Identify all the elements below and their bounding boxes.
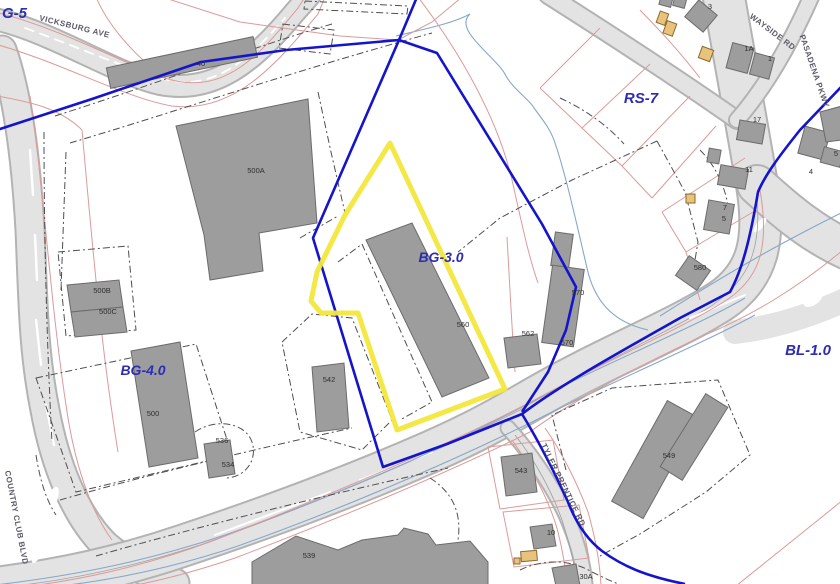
building-label-500: 500 <box>147 409 160 418</box>
building-label-3: 3 <box>708 2 712 11</box>
building-label-560: 560 <box>457 320 470 329</box>
building-small-top <box>673 0 687 8</box>
parcel-line <box>736 500 840 584</box>
building-30A <box>552 564 580 584</box>
building-label-5: 5 <box>722 214 726 223</box>
building-500A <box>176 99 317 280</box>
zone-label-bl1: BL-1.0 <box>785 342 832 359</box>
building-label-7: 7 <box>723 203 727 212</box>
zone-label-rs7: RS-7 <box>624 90 659 107</box>
building-label-539: 539 <box>303 551 316 560</box>
zone-label-bg4: BG-4.0 <box>120 362 165 378</box>
zone-label-g5: G-5 <box>2 5 28 22</box>
building-542 <box>312 363 349 432</box>
building-534 <box>204 440 235 478</box>
building-17 <box>736 120 765 144</box>
building-label-570-lower: 570 <box>561 338 574 347</box>
building-label-570-upper: 570 <box>572 288 585 297</box>
building-7-5 <box>704 200 735 234</box>
building-label-1: 1 <box>768 54 772 63</box>
building-label-1A: 1A <box>744 44 753 53</box>
building-11b <box>707 148 721 164</box>
building-11 <box>717 165 748 190</box>
building-label-549: 549 <box>663 451 676 460</box>
zoning-map-canvas[interactable]: G-5 RS-7 BG-3.0 BG-4.0 BL-1.0 VICKSBURG … <box>0 0 840 584</box>
building-539 <box>252 528 488 584</box>
building-label-580: 580 <box>694 263 707 272</box>
building-small-top <box>659 0 673 7</box>
building-500 <box>131 342 198 467</box>
building-label-536: 536 <box>216 436 229 445</box>
road-ramp-south <box>735 300 840 332</box>
curb-dash <box>430 478 459 540</box>
parking-row-dash <box>61 152 66 290</box>
building-label-10: 10 <box>547 528 555 537</box>
building-label-17: 17 <box>753 115 761 124</box>
building-label-4: 4 <box>809 167 813 176</box>
shed <box>521 550 538 561</box>
building-label-30A: 30A <box>579 572 592 581</box>
building-label-500B: 500B <box>93 286 111 295</box>
parcel-line <box>540 28 600 88</box>
map-svg: G-5 RS-7 BG-3.0 BG-4.0 BL-1.0 VICKSBURG … <box>0 0 840 584</box>
street-label-country-club: COUNTRY CLUB BLVD <box>3 470 30 565</box>
zone-label-bg3: BG-3.0 <box>418 249 463 265</box>
building-label-534: 534 <box>222 460 235 469</box>
building-label-11: 11 <box>745 165 753 174</box>
building-label-5-east: 5 <box>834 149 838 158</box>
shed <box>514 558 520 564</box>
street-label-pasadena: PASADENA PKWY <box>798 33 832 109</box>
easement-dash <box>304 1 408 14</box>
building-label-40: 40 <box>197 59 205 68</box>
building-label-543: 543 <box>515 466 528 475</box>
building-label-500C: 500C <box>99 307 118 316</box>
building-label-500A: 500A <box>247 166 265 175</box>
building-label-542: 542 <box>323 375 336 384</box>
building-label-562: 562 <box>522 329 535 338</box>
shed <box>686 194 695 203</box>
building-562 <box>504 334 541 368</box>
